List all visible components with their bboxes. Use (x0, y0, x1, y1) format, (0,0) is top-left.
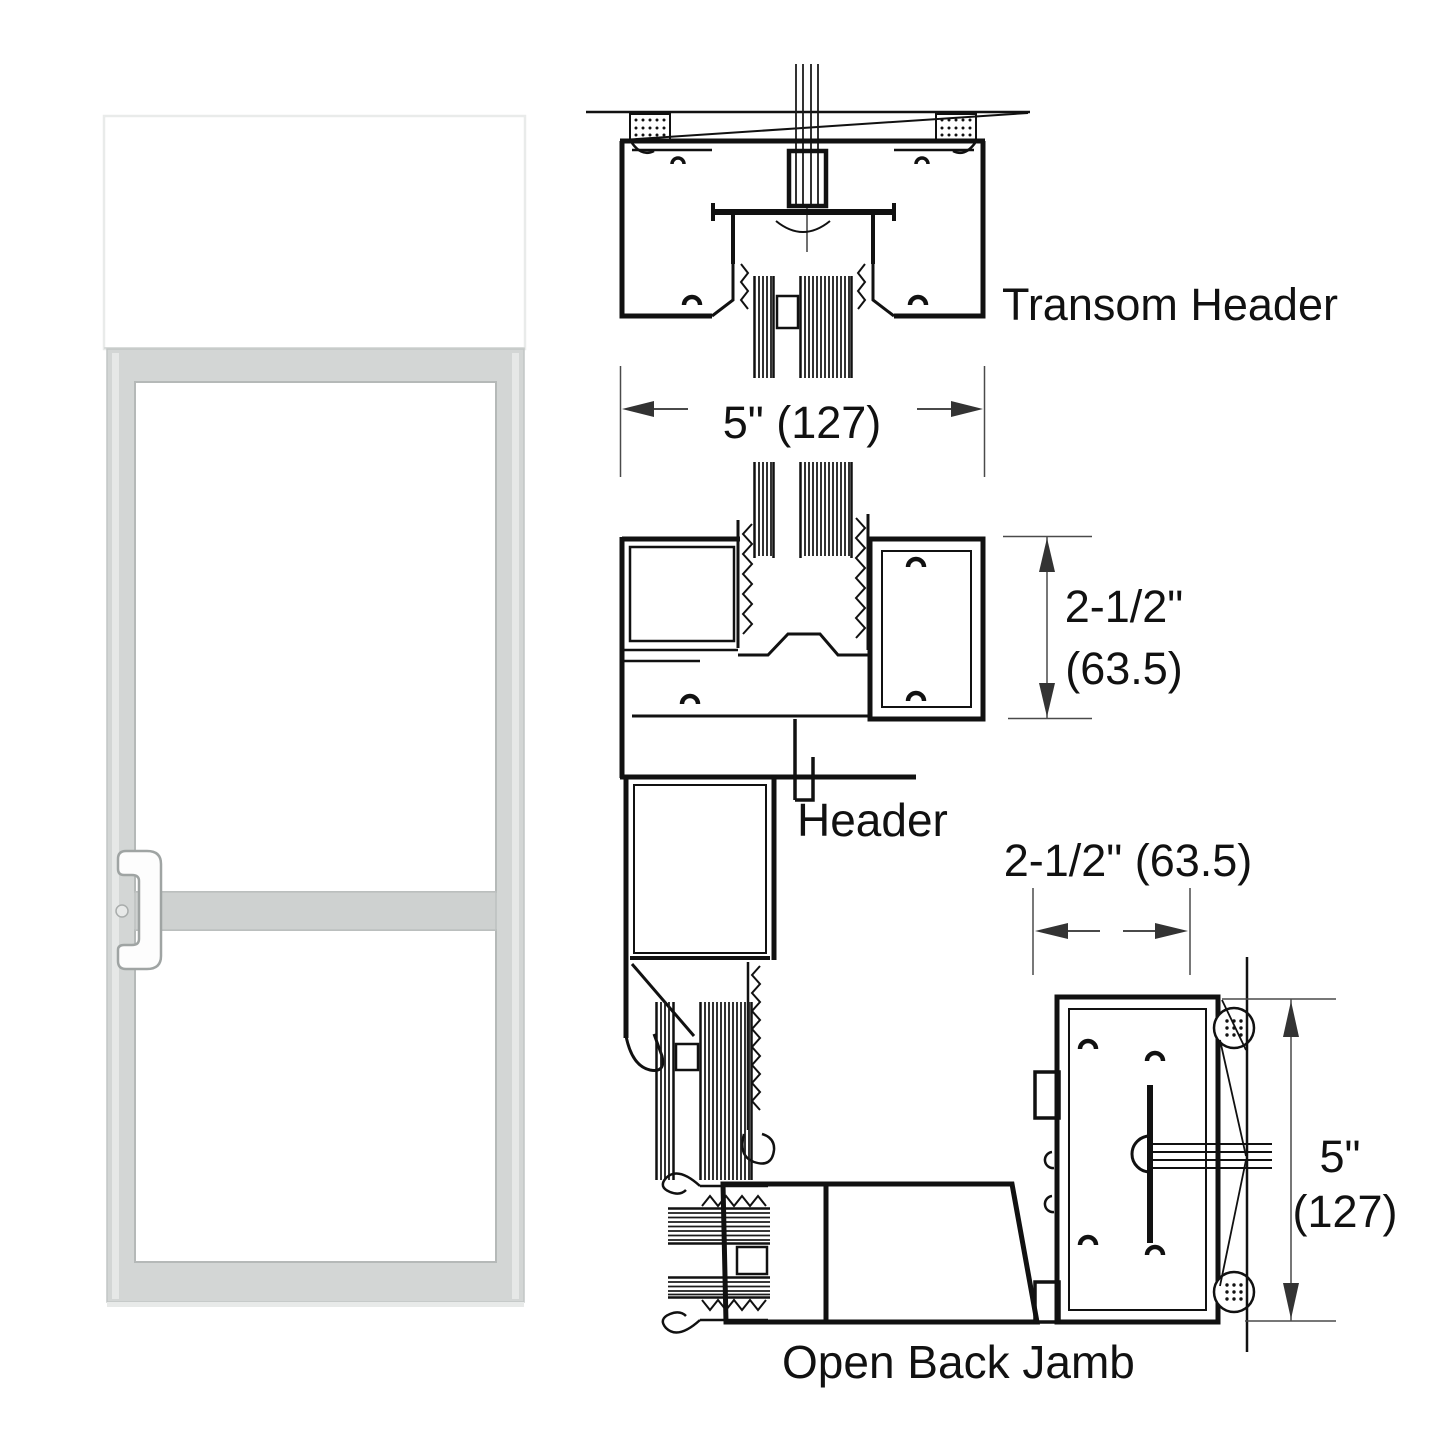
glass-above-lines (796, 64, 818, 252)
technical-drawing: 5" (127) Transom Header (0, 0, 1445, 1445)
glazing-spacer (676, 1044, 698, 1070)
gasket-clip (916, 158, 928, 164)
gasket-serration-bottom (702, 1300, 766, 1310)
screw-boss-clip (682, 696, 698, 704)
jamb-height-dim-in: 5" (1319, 1131, 1360, 1182)
header-height-dim-mm: (63.5) (1065, 643, 1183, 694)
fastener-lines (1150, 1144, 1272, 1168)
mullion-stem (789, 151, 826, 206)
header-tube (870, 539, 983, 719)
dim-header-height: 2-1/2" (63.5) (1003, 537, 1183, 719)
jamb-width-dim-text: 2-1/2" (63.5) (1004, 835, 1253, 886)
screw-boss-clip (1147, 1053, 1163, 1061)
door-glass-lower (135, 930, 496, 1262)
drawing-sheet: 5" (127) Transom Header (0, 0, 1445, 1445)
header-height-dim-in: 2-1/2" (1065, 581, 1184, 632)
transom-width-dim-text: 5" (127) (723, 397, 882, 448)
door-elevation (104, 116, 525, 1307)
door-stile-highlight-right (512, 353, 519, 1299)
glazing-spacer (737, 1247, 767, 1274)
transom-panel (104, 116, 525, 349)
gasket-serration (752, 966, 760, 1110)
door-lock-cylinder (116, 905, 128, 917)
door-mid-rail (135, 892, 496, 930)
header-profile (620, 537, 983, 800)
header-glass-stack-top (755, 462, 852, 558)
screw-boss-clip (910, 297, 926, 305)
door-stile-tube (723, 1184, 1037, 1322)
gasket-end-curl (742, 1134, 774, 1164)
dim-transom-width: 5" (127) (621, 366, 985, 477)
door-shadow (107, 1302, 524, 1307)
jamb-height-dim-mm: (127) (1292, 1186, 1397, 1237)
stop-curl-bottom (663, 1312, 700, 1332)
door-glass-upper (135, 382, 496, 892)
section-open-back-jamb (663, 957, 1272, 1352)
gasket-serration-left (743, 524, 752, 634)
screw-boss-clip (908, 559, 924, 567)
gasket-serration-right (856, 518, 865, 638)
gasket-serration-top (702, 1196, 766, 1206)
door-glass-stack (657, 1002, 752, 1180)
open-back-jamb-label: Open Back Jamb (782, 1336, 1135, 1388)
transom-header-label: Transom Header (1002, 279, 1338, 330)
screw-boss-clip (1080, 1237, 1096, 1245)
screw-boss-clip (684, 297, 700, 305)
section-transom-header (586, 64, 1030, 378)
gasket-clip (672, 158, 684, 164)
dim-jamb-width: 2-1/2" (63.5) (1004, 835, 1253, 975)
setting-block (738, 634, 868, 655)
transom-glass-stack (755, 276, 852, 378)
glazing-spacer (777, 296, 798, 328)
door-stile-highlight-left (112, 353, 119, 1299)
door-stop-hook (795, 719, 813, 800)
jamb-door-glass (668, 1209, 770, 1298)
stop-curl-top (663, 1174, 700, 1194)
shim-diagonal (622, 113, 1028, 140)
screw-boss-clip (908, 693, 924, 701)
header-label: Header (797, 794, 948, 846)
screw-boss-clip (1147, 1247, 1163, 1255)
screw-boss-clip (1080, 1041, 1096, 1049)
